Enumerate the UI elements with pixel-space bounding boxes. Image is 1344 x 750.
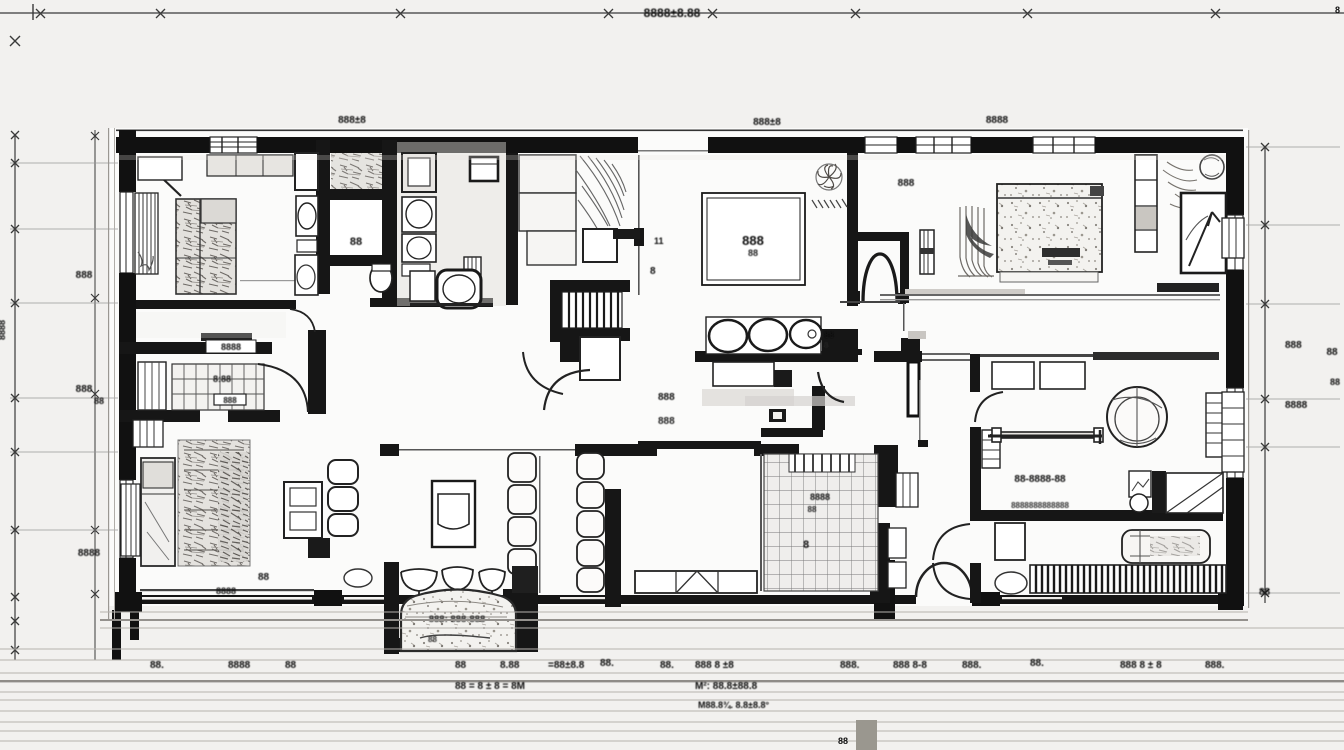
svg-text:888: 888 bbox=[76, 384, 93, 395]
svg-text:888.: 888. bbox=[1205, 660, 1225, 671]
svg-text:888: 888 bbox=[898, 178, 915, 189]
svg-text:88: 88 bbox=[1330, 377, 1340, 387]
svg-text:88: 88 bbox=[1259, 587, 1271, 598]
svg-text:11: 11 bbox=[654, 236, 664, 246]
svg-text:8888: 8888 bbox=[221, 342, 241, 352]
svg-text:888: 888 bbox=[1285, 340, 1302, 351]
svg-text:8888888888888: 8888888888888 bbox=[1011, 501, 1069, 510]
svg-text:888: 888 bbox=[658, 392, 675, 403]
svg-text:88: 88 bbox=[824, 330, 834, 340]
svg-text:888.: 888. bbox=[962, 660, 982, 671]
svg-text:888: 888 bbox=[742, 233, 764, 248]
svg-text:8: 8 bbox=[1335, 5, 1340, 15]
svg-text:M²: 88.8±88.8: M²: 88.8±88.8 bbox=[695, 681, 758, 692]
svg-text:8: 8 bbox=[824, 341, 829, 350]
svg-text:88: 88 bbox=[428, 635, 437, 644]
svg-text:88: 88 bbox=[285, 660, 297, 671]
svg-text:=88±8.8: =88±8.8 bbox=[548, 660, 585, 671]
svg-text:88.: 88. bbox=[600, 658, 614, 669]
svg-text:8: 8 bbox=[650, 266, 656, 277]
svg-text:88: 88 bbox=[748, 248, 758, 258]
svg-text:M88.8¾. 8.8±8.8°: M88.8¾. 8.8±8.8° bbox=[698, 700, 769, 710]
svg-text:8: 8 bbox=[803, 539, 809, 551]
svg-text:888.: 888. bbox=[840, 660, 860, 671]
svg-text:888±8: 888±8 bbox=[338, 115, 366, 126]
svg-text:888±8: 888±8 bbox=[753, 117, 781, 128]
svg-text:8888: 8888 bbox=[0, 320, 7, 340]
svg-text:888 8-8: 888 8-8 bbox=[893, 660, 927, 671]
svg-text:88: 88 bbox=[1326, 347, 1338, 358]
svg-text:88.: 88. bbox=[660, 660, 674, 671]
svg-text:8888: 8888 bbox=[78, 548, 101, 559]
svg-text:8888±8.88: 8888±8.88 bbox=[644, 6, 701, 20]
svg-text:8:88: 8:88 bbox=[213, 374, 231, 384]
svg-text:88-8888-88: 88-8888-88 bbox=[1014, 474, 1066, 485]
svg-text:8888: 8888 bbox=[986, 115, 1009, 126]
svg-text:88: 88 bbox=[258, 572, 270, 583]
svg-text:88: 88 bbox=[808, 505, 817, 514]
svg-text:88.: 88. bbox=[1030, 658, 1044, 669]
svg-text:888 8 ±8: 888 8 ±8 bbox=[695, 660, 734, 671]
svg-text:8888: 8888 bbox=[216, 586, 236, 596]
svg-text:888 8 ± 8: 888 8 ± 8 bbox=[1120, 660, 1162, 671]
svg-text:88: 88 bbox=[94, 396, 104, 406]
svg-text:88: 88 bbox=[838, 736, 848, 746]
svg-text:8.88: 8.88 bbox=[500, 660, 520, 671]
svg-text:88 = 8 ± 8 = 8M: 88 = 8 ± 8 = 8M bbox=[455, 681, 525, 692]
svg-text:8888: 8888 bbox=[1285, 400, 1308, 411]
svg-text:8888: 8888 bbox=[810, 492, 830, 502]
svg-text:8888: 8888 bbox=[228, 660, 251, 671]
svg-text:888: 888 bbox=[76, 270, 93, 281]
svg-text:888: 888 bbox=[658, 416, 675, 427]
svg-text:88: 88 bbox=[455, 660, 467, 671]
svg-text:88: 88 bbox=[350, 236, 362, 248]
svg-text:88.: 88. bbox=[150, 660, 164, 671]
svg-text:888: 888 bbox=[223, 396, 237, 405]
